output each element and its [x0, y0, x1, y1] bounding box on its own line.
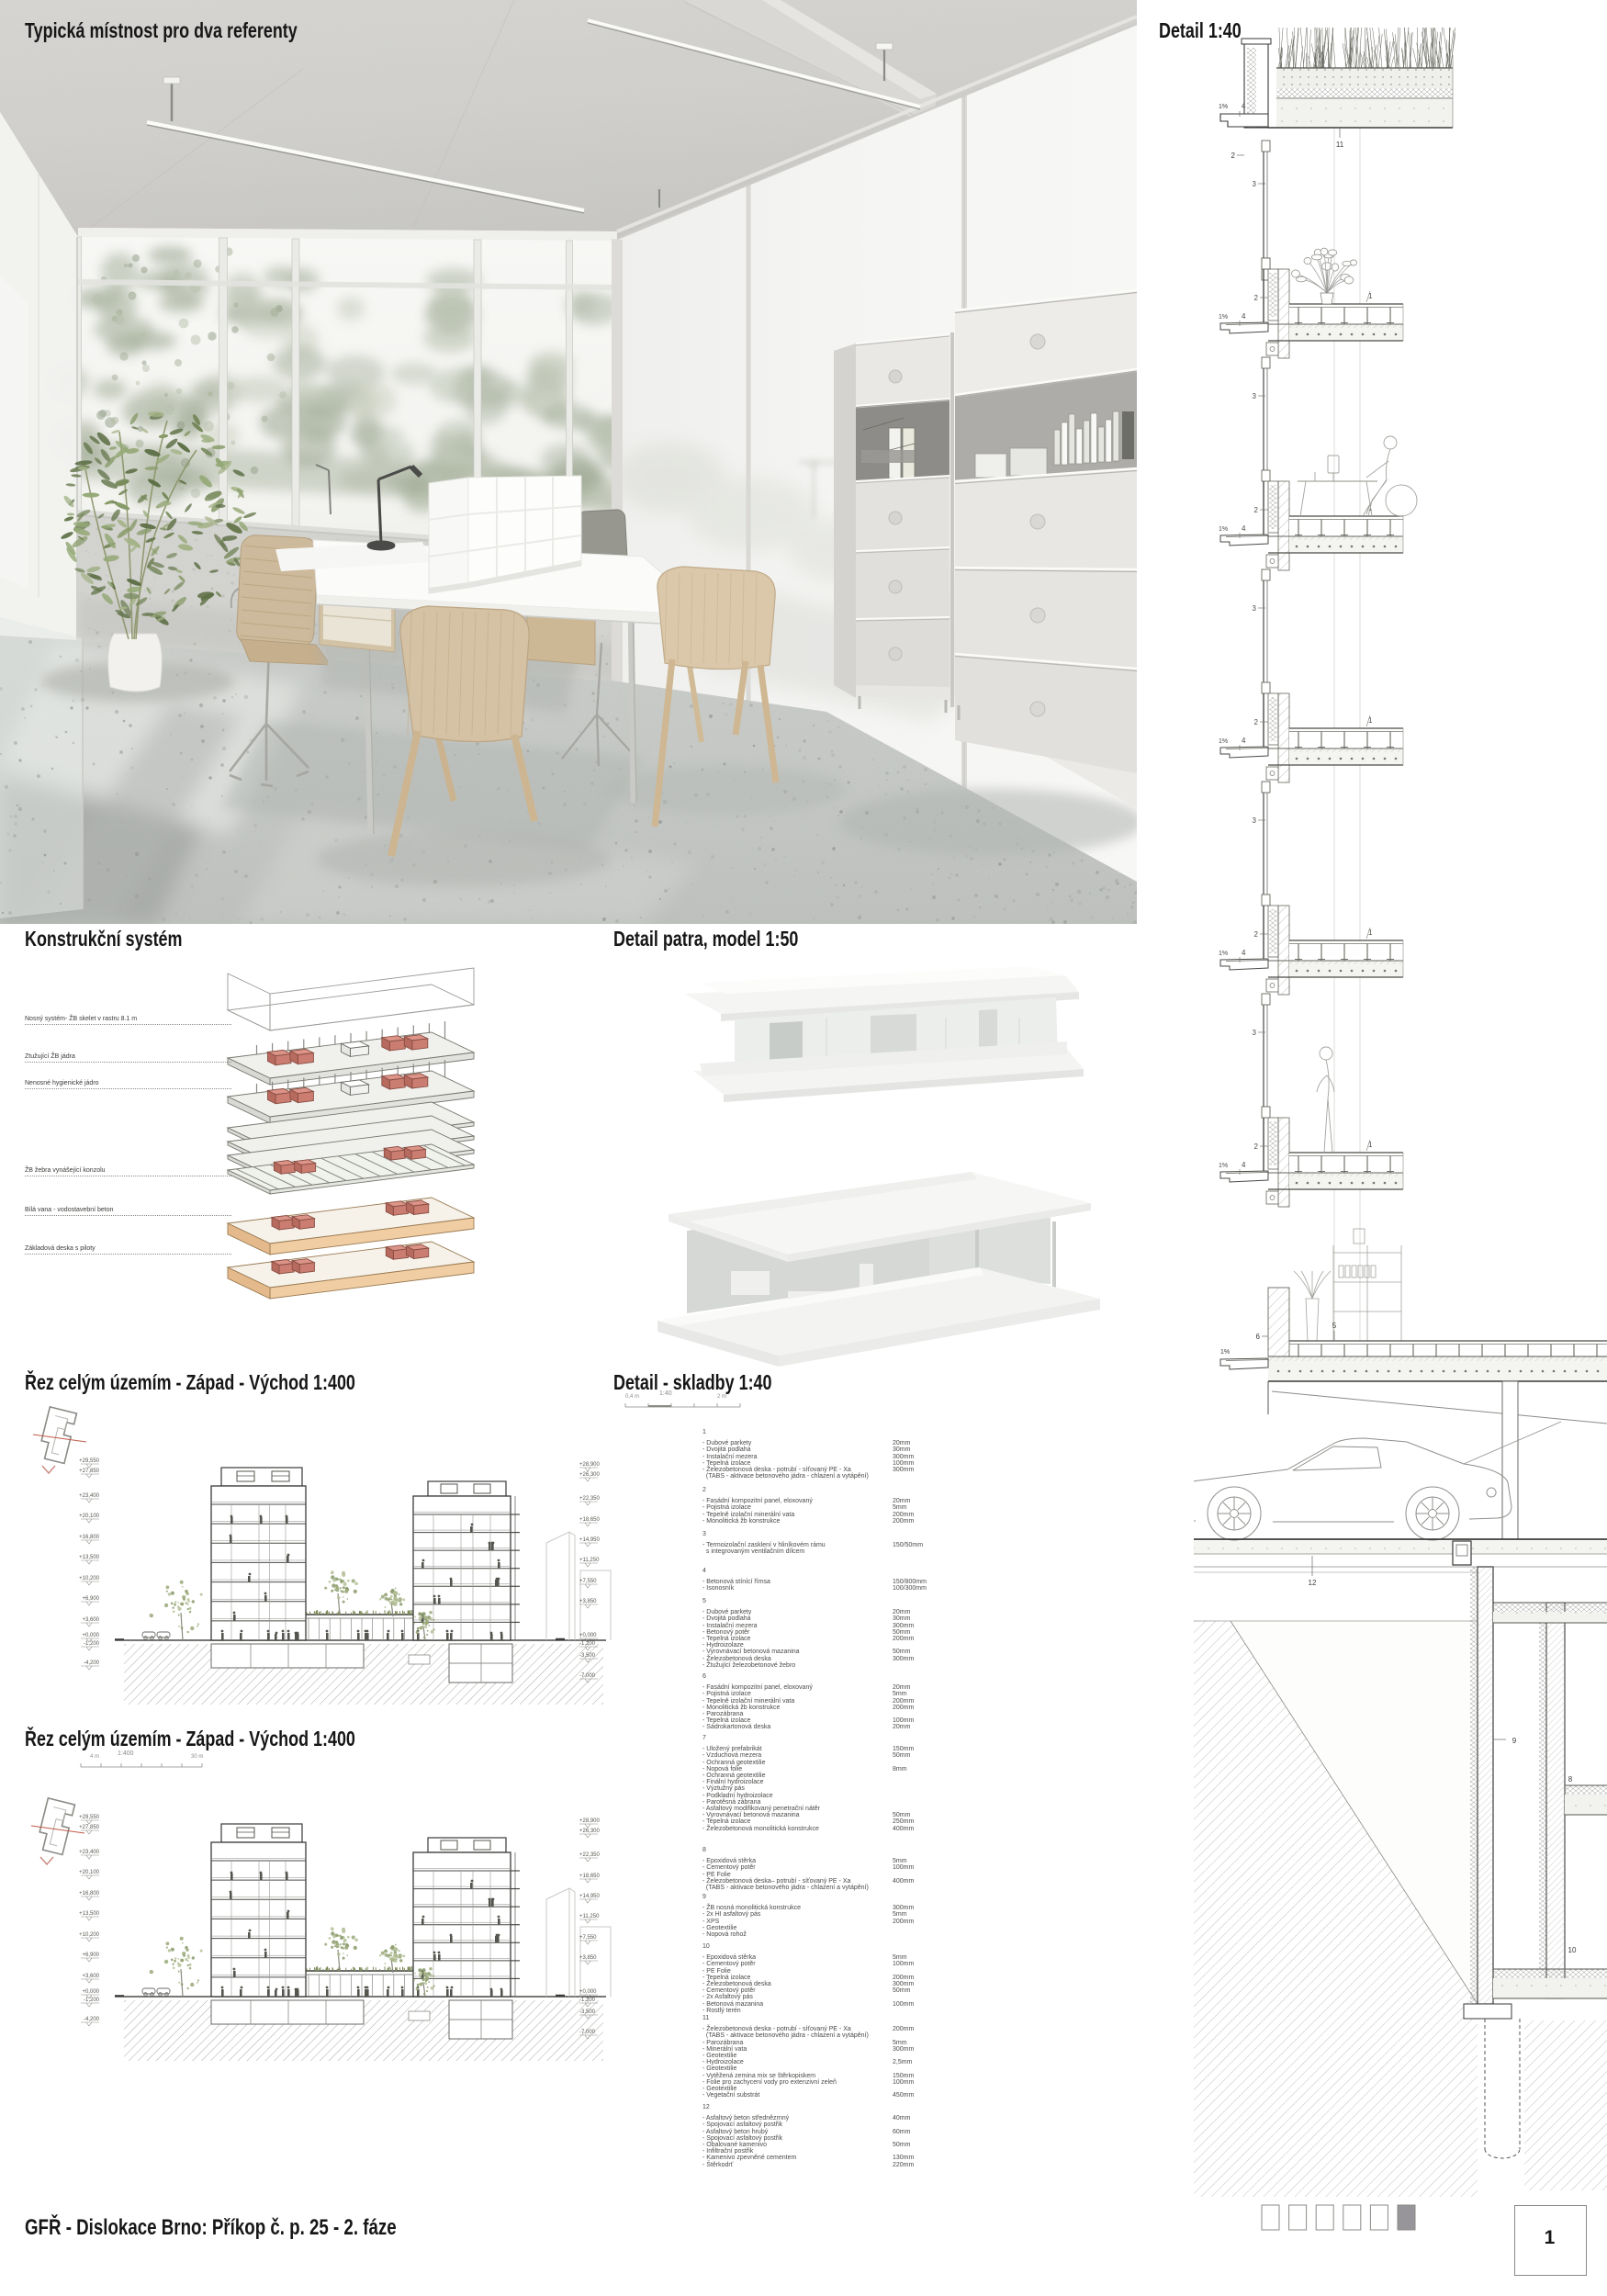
- svg-text:2: 2: [1231, 152, 1236, 160]
- svg-text:3: 3: [1253, 816, 1257, 825]
- svg-text:3: 3: [1253, 180, 1257, 188]
- svg-text:+14,950: +14,950: [579, 1537, 601, 1543]
- svg-text:4: 4: [1242, 949, 1246, 957]
- svg-text:+28,900: +28,900: [579, 1462, 601, 1468]
- svg-text:12: 12: [1309, 1579, 1317, 1587]
- svg-text:-1,200: -1,200: [579, 1641, 596, 1647]
- svg-text:-3,500: -3,500: [579, 1653, 596, 1659]
- svg-text:+20,100: +20,100: [79, 1514, 100, 1519]
- svg-text:-1,200: -1,200: [579, 1998, 596, 2003]
- svg-text:1%: 1%: [1219, 314, 1228, 321]
- svg-text:+0,000: +0,000: [579, 1989, 597, 1995]
- svg-text:1%: 1%: [1219, 951, 1228, 957]
- svg-text:1: 1: [1368, 1141, 1373, 1149]
- svg-text:6: 6: [1256, 1333, 1261, 1341]
- svg-text:1%: 1%: [1220, 1349, 1230, 1356]
- svg-text:2: 2: [1254, 1142, 1259, 1151]
- svg-text:1: 1: [1368, 716, 1373, 725]
- svg-text:0,4 m: 0,4 m: [625, 1394, 639, 1400]
- svg-text:-1,200: -1,200: [84, 1998, 100, 2003]
- svg-text:2: 2: [1254, 294, 1259, 302]
- svg-text:+28,900: +28,900: [579, 1818, 601, 1824]
- svg-text:3: 3: [1253, 604, 1257, 613]
- svg-text:4 m: 4 m: [90, 1754, 99, 1760]
- svg-text:8: 8: [1568, 1775, 1573, 1784]
- svg-text:4: 4: [1242, 737, 1246, 745]
- svg-text:11: 11: [1336, 141, 1344, 149]
- svg-text:+10,200: +10,200: [79, 1932, 100, 1938]
- svg-text:+3,600: +3,600: [82, 1617, 99, 1623]
- svg-text:+18,650: +18,650: [579, 1517, 601, 1523]
- svg-text:-4,200: -4,200: [84, 2017, 100, 2022]
- svg-text:+13,500: +13,500: [79, 1555, 100, 1560]
- svg-text:-1,200: -1,200: [84, 1641, 100, 1647]
- svg-text:+26,300: +26,300: [579, 1829, 601, 1834]
- svg-text:+0,000: +0,000: [82, 1633, 99, 1638]
- svg-text:-4,200: -4,200: [84, 1660, 100, 1666]
- svg-text:+0,000: +0,000: [82, 1989, 99, 1995]
- svg-text:1%: 1%: [1219, 104, 1228, 110]
- svg-text:+7,550: +7,550: [579, 1579, 597, 1584]
- svg-text:+6,900: +6,900: [82, 1596, 99, 1602]
- svg-text:1: 1: [1368, 929, 1373, 937]
- svg-text:+11,250: +11,250: [579, 1558, 600, 1563]
- svg-text:+3,850: +3,850: [579, 1955, 597, 1961]
- svg-text:1:400: 1:400: [118, 1750, 134, 1757]
- svg-text:2: 2: [1254, 930, 1259, 939]
- svg-text:2: 2: [1254, 506, 1259, 514]
- svg-text:+14,950: +14,950: [579, 1894, 601, 1899]
- svg-text:1%: 1%: [1219, 738, 1228, 745]
- svg-text:2: 2: [1254, 718, 1259, 726]
- svg-text:4: 4: [1242, 1161, 1246, 1169]
- svg-text:9: 9: [1512, 1737, 1517, 1745]
- svg-text:1%: 1%: [1219, 1163, 1228, 1169]
- svg-text:3: 3: [1253, 392, 1257, 400]
- svg-text:+16,800: +16,800: [79, 1891, 100, 1896]
- svg-text:1:40: 1:40: [659, 1390, 672, 1397]
- svg-text:-7,000: -7,000: [579, 1673, 596, 1679]
- svg-text:5: 5: [1332, 1322, 1337, 1330]
- svg-text:+13,500: +13,500: [79, 1911, 100, 1917]
- svg-text:1%: 1%: [1219, 526, 1228, 533]
- svg-text:+0,000: +0,000: [579, 1633, 597, 1638]
- svg-text:3: 3: [1253, 1029, 1257, 1037]
- svg-text:+10,200: +10,200: [79, 1576, 100, 1581]
- svg-text:4: 4: [1242, 524, 1246, 533]
- svg-text:+11,250: +11,250: [579, 1914, 600, 1919]
- svg-text:4: 4: [1242, 312, 1246, 321]
- svg-text:30 m: 30 m: [191, 1754, 203, 1760]
- svg-text:+3,600: +3,600: [82, 1974, 99, 1979]
- svg-text:+6,900: +6,900: [82, 1953, 99, 1958]
- svg-text:2 m: 2 m: [717, 1394, 726, 1400]
- svg-text:+3,850: +3,850: [579, 1599, 597, 1604]
- svg-text:-3,500: -3,500: [579, 2009, 596, 2015]
- svg-text:4: 4: [1242, 102, 1246, 110]
- svg-text:-7,000: -7,000: [579, 2030, 596, 2035]
- svg-text:+22,350: +22,350: [579, 1852, 601, 1858]
- svg-text:+7,550: +7,550: [579, 1935, 597, 1941]
- svg-text:+16,800: +16,800: [79, 1535, 100, 1540]
- svg-text:+22,350: +22,350: [579, 1496, 601, 1502]
- svg-text:+18,650: +18,650: [579, 1874, 601, 1879]
- svg-text:1: 1: [1368, 292, 1373, 300]
- svg-text:+26,300: +26,300: [579, 1472, 601, 1478]
- svg-text:+23,400: +23,400: [79, 1493, 100, 1499]
- svg-text:10: 10: [1568, 1946, 1577, 1954]
